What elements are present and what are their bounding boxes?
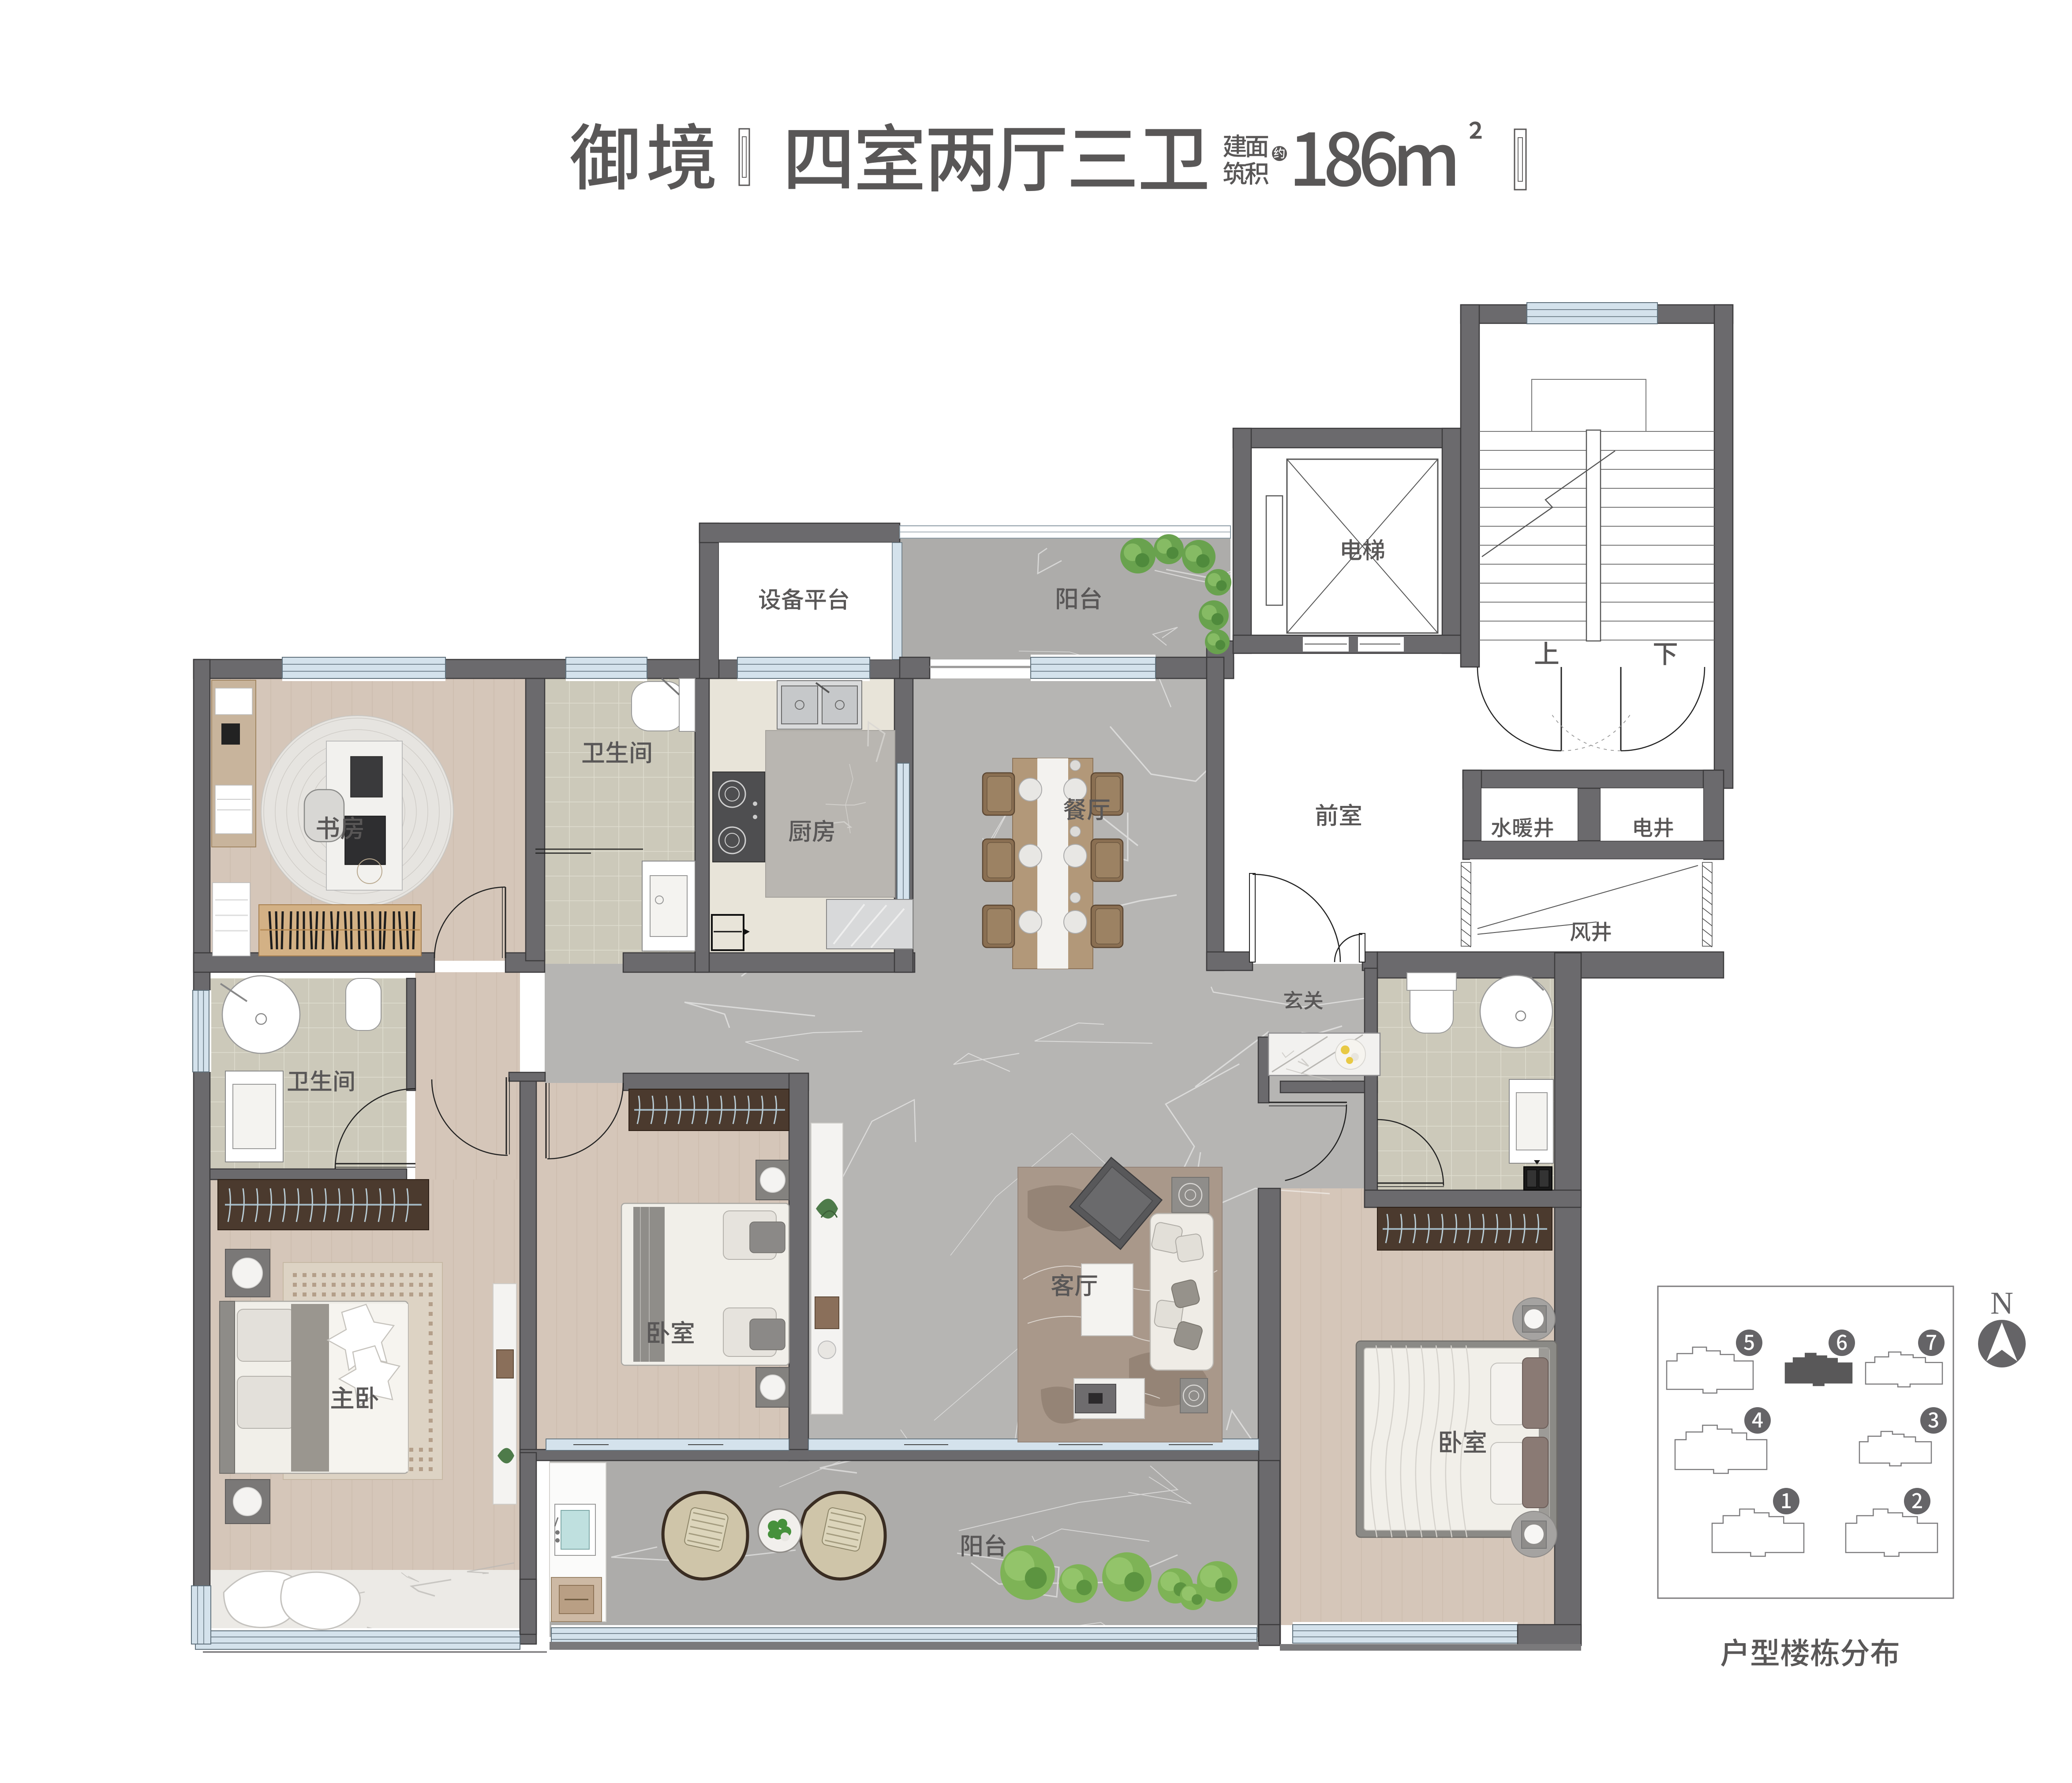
svg-text:N: N bbox=[1990, 1285, 2013, 1321]
